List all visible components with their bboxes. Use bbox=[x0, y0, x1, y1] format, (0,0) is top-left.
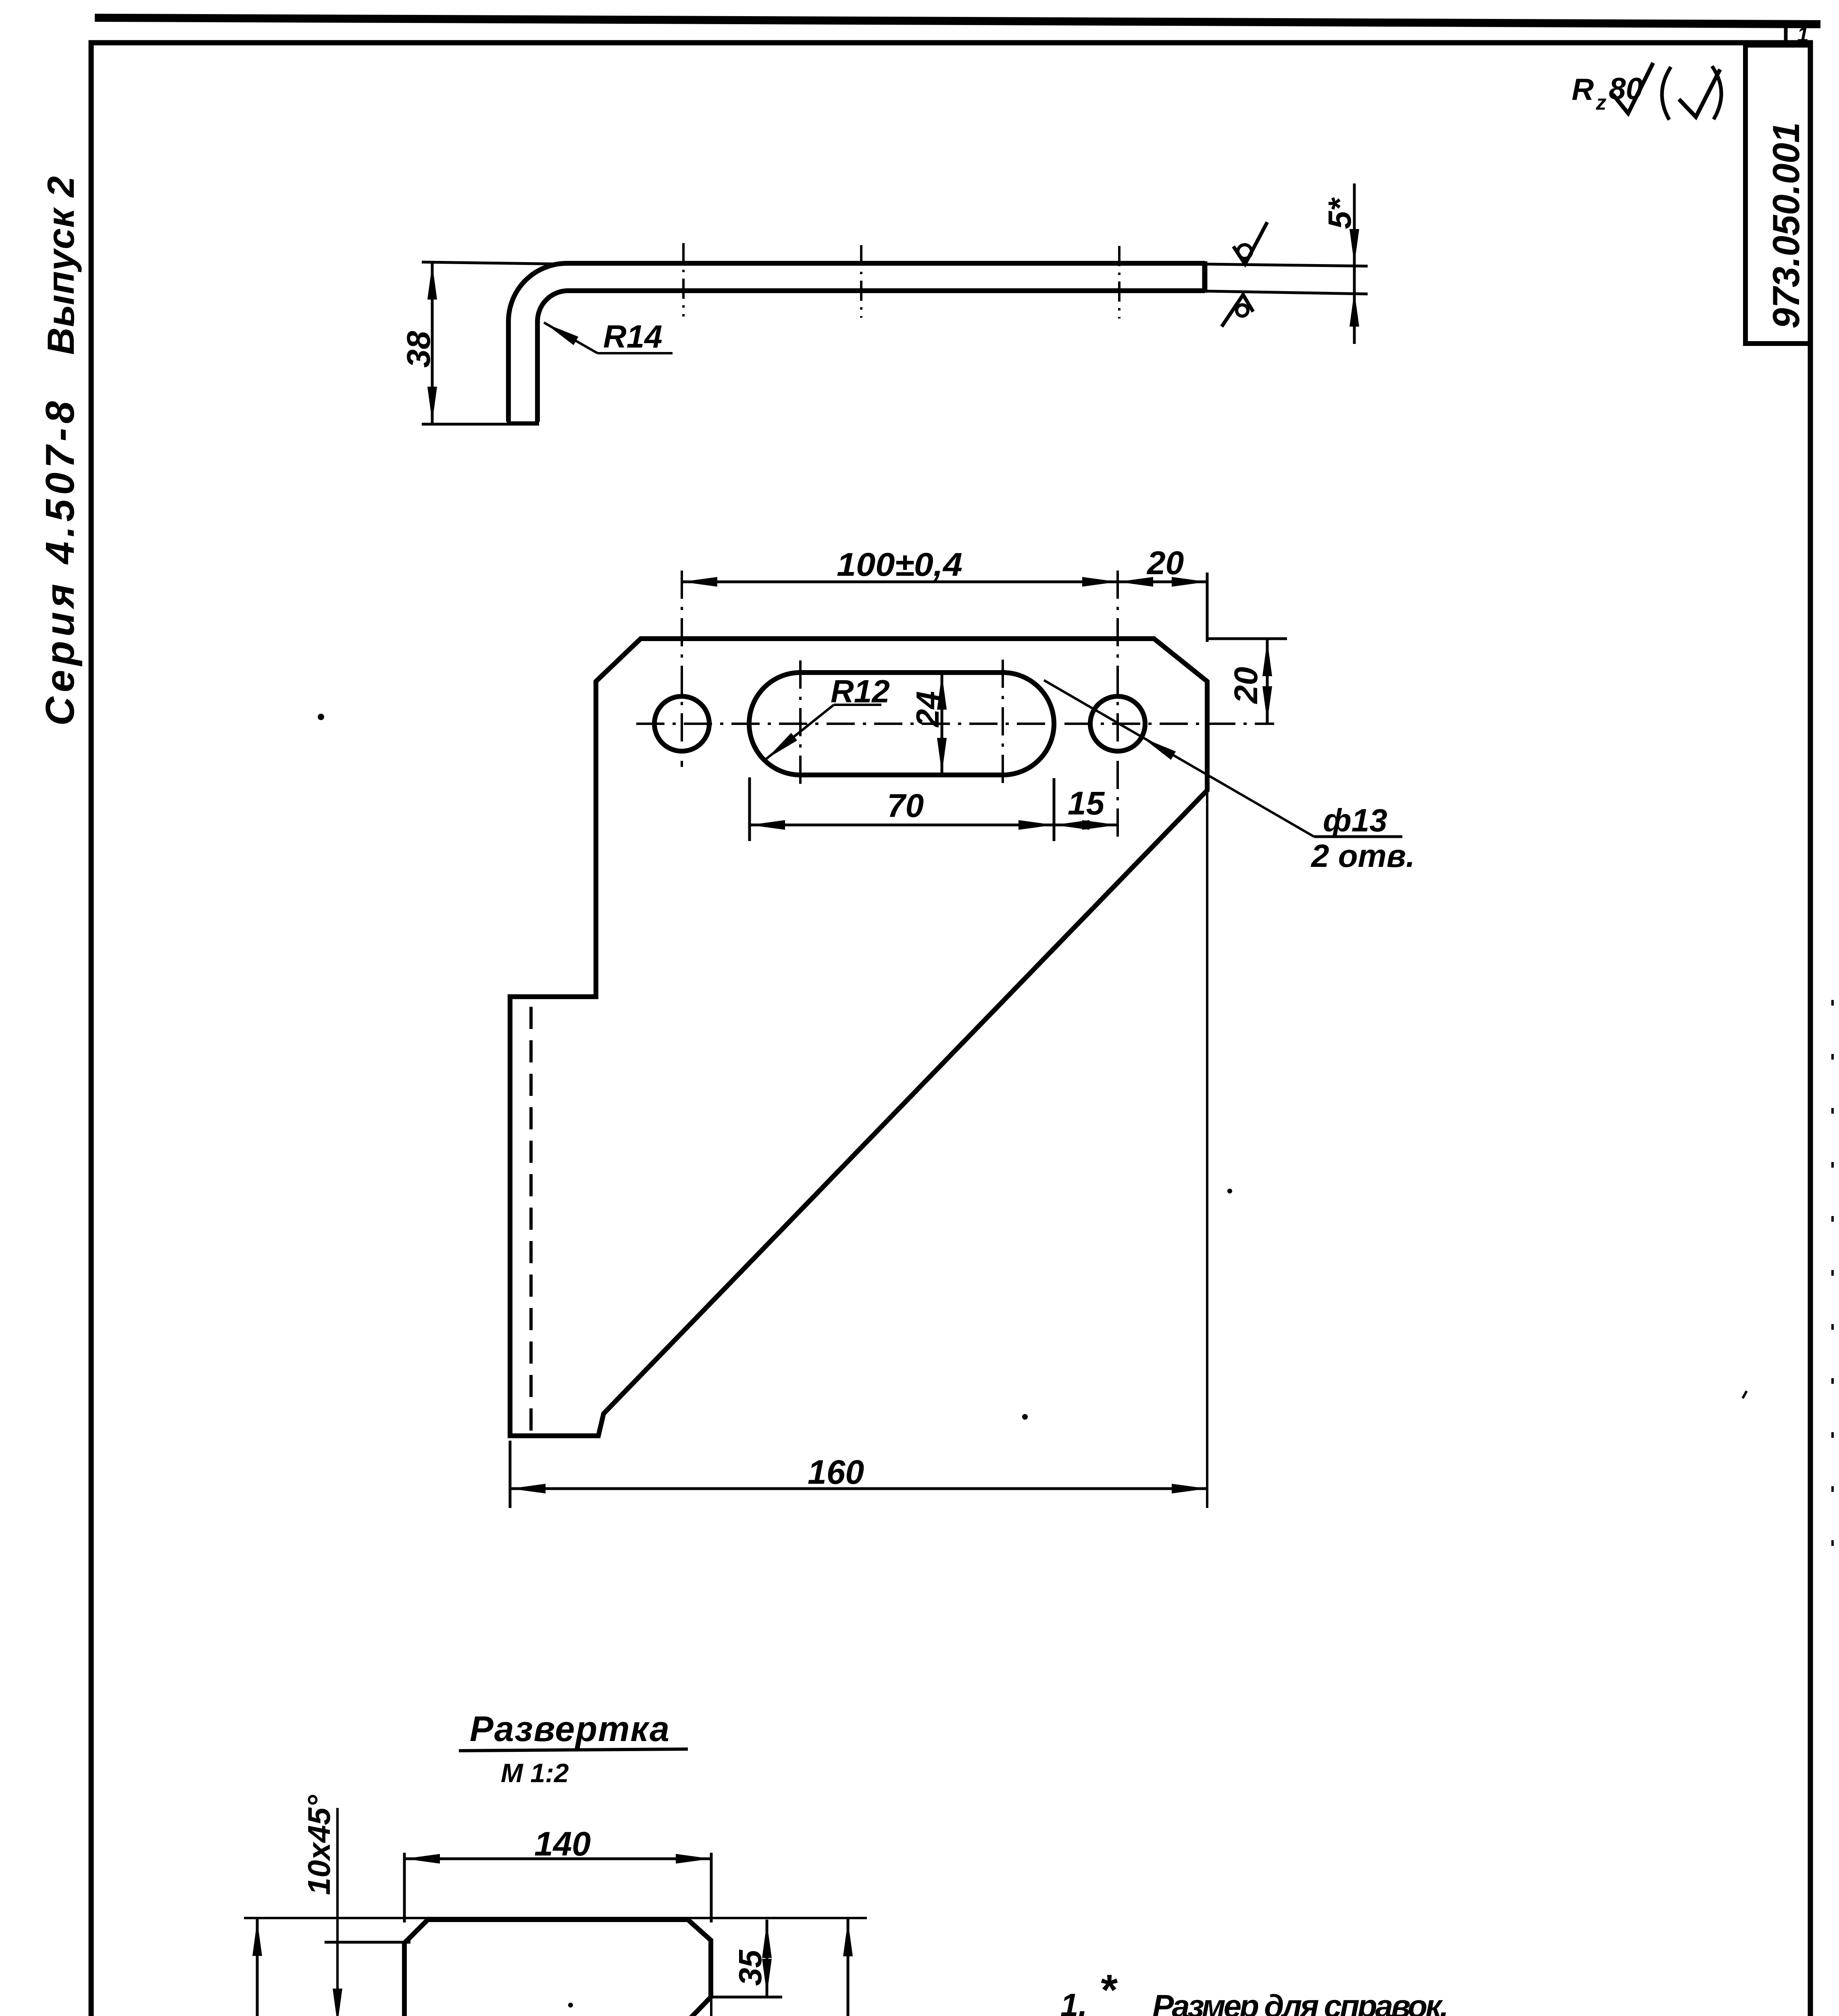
svg-text:Размер для справок.: Размер для справок. bbox=[1152, 1988, 1449, 2016]
svg-text:Выпуск 2: Выпуск 2 bbox=[40, 176, 82, 355]
svg-text:24: 24 bbox=[910, 691, 946, 728]
svg-text:R12: R12 bbox=[831, 673, 890, 709]
svg-text:R14: R14 bbox=[603, 319, 662, 354]
svg-text:R: R bbox=[1572, 73, 1594, 107]
svg-text:70: 70 bbox=[887, 787, 924, 824]
svg-text:20: 20 bbox=[1146, 545, 1184, 581]
svg-text:Развертка: Развертка bbox=[470, 1709, 670, 1749]
svg-text:140: 140 bbox=[534, 1825, 591, 1863]
svg-text:100±0,4: 100±0,4 bbox=[837, 546, 962, 583]
svg-text:973.050.001: 973.050.001 bbox=[1765, 122, 1807, 329]
svg-text:z: z bbox=[1595, 91, 1606, 115]
svg-text:80: 80 bbox=[1609, 72, 1643, 106]
svg-text:20: 20 bbox=[1228, 667, 1264, 704]
svg-text:160: 160 bbox=[808, 1453, 864, 1491]
svg-text:35: 35 bbox=[732, 1949, 768, 1986]
svg-text:Серия 4.507-8: Серия 4.507-8 bbox=[37, 401, 83, 726]
svg-text:5*: 5* bbox=[1322, 197, 1358, 229]
svg-text:15: 15 bbox=[1068, 785, 1105, 822]
svg-text:38: 38 bbox=[400, 331, 437, 368]
svg-text:М 1:2: М 1:2 bbox=[501, 1758, 569, 1788]
svg-text:1.: 1. bbox=[1060, 1987, 1087, 2016]
svg-text:10х45°: 10х45° bbox=[301, 1795, 337, 1895]
svg-text:ф13: ф13 bbox=[1323, 802, 1387, 838]
svg-text:2 отв.: 2 отв. bbox=[1310, 838, 1415, 874]
svg-text:*: * bbox=[1099, 1965, 1118, 2014]
